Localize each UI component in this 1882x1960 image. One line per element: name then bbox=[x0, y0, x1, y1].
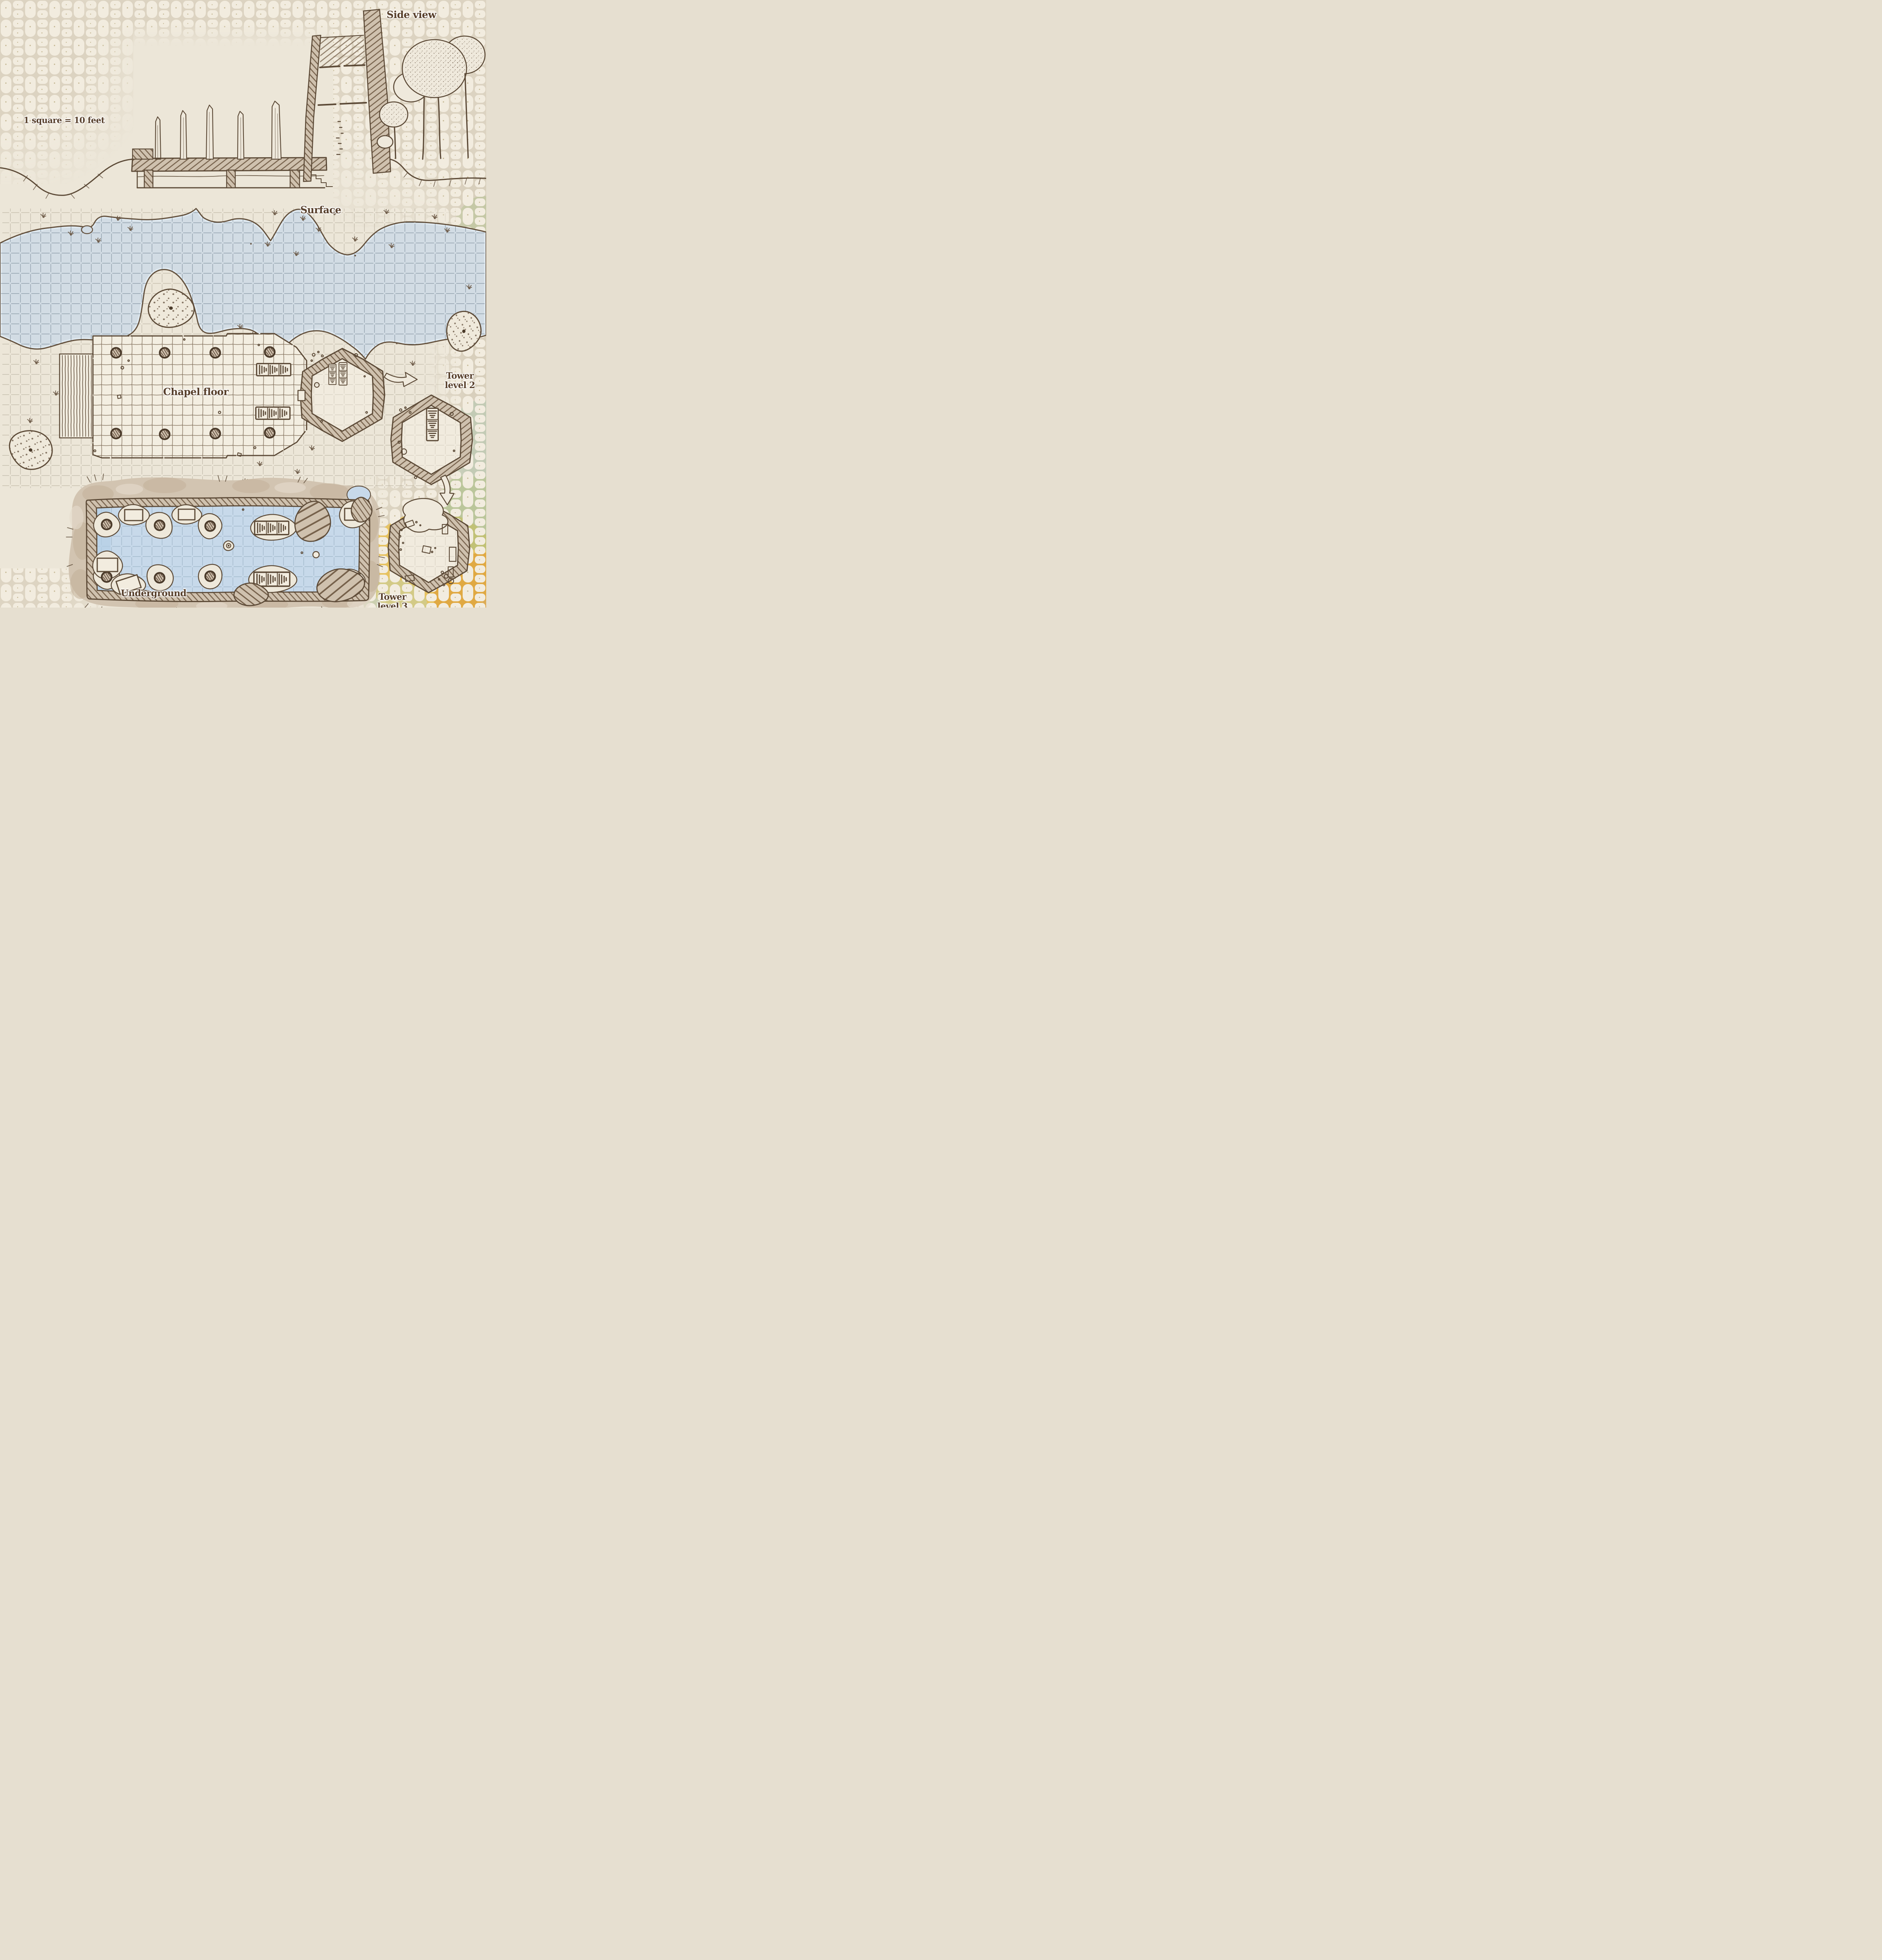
label-map-scale: 1 square = 10 feet bbox=[24, 116, 105, 125]
stairs-icon bbox=[427, 408, 438, 441]
underground-map bbox=[66, 474, 385, 608]
fantasy-map-page: Side view 1 square = 10 feet Surface Cha… bbox=[0, 0, 486, 608]
stairs-icon bbox=[255, 521, 289, 535]
label-tower-level-2: Tower level 2 bbox=[436, 372, 484, 390]
surface-map bbox=[0, 204, 486, 505]
stairs-icon bbox=[254, 572, 290, 586]
stairs-icon bbox=[339, 363, 347, 385]
label-underground: Underground bbox=[121, 589, 186, 599]
stairs-icon bbox=[257, 364, 291, 376]
label-side-view: Side view bbox=[387, 9, 436, 20]
stairs-icon bbox=[256, 407, 290, 419]
stairs-icon bbox=[329, 364, 336, 385]
map-artwork bbox=[0, 0, 486, 608]
label-surface: Surface bbox=[300, 205, 341, 215]
label-tower-level-3: Tower level 3 bbox=[369, 593, 416, 608]
doorway bbox=[298, 390, 305, 401]
label-chapel-floor: Chapel floor bbox=[163, 387, 229, 397]
small-pond bbox=[82, 226, 93, 234]
